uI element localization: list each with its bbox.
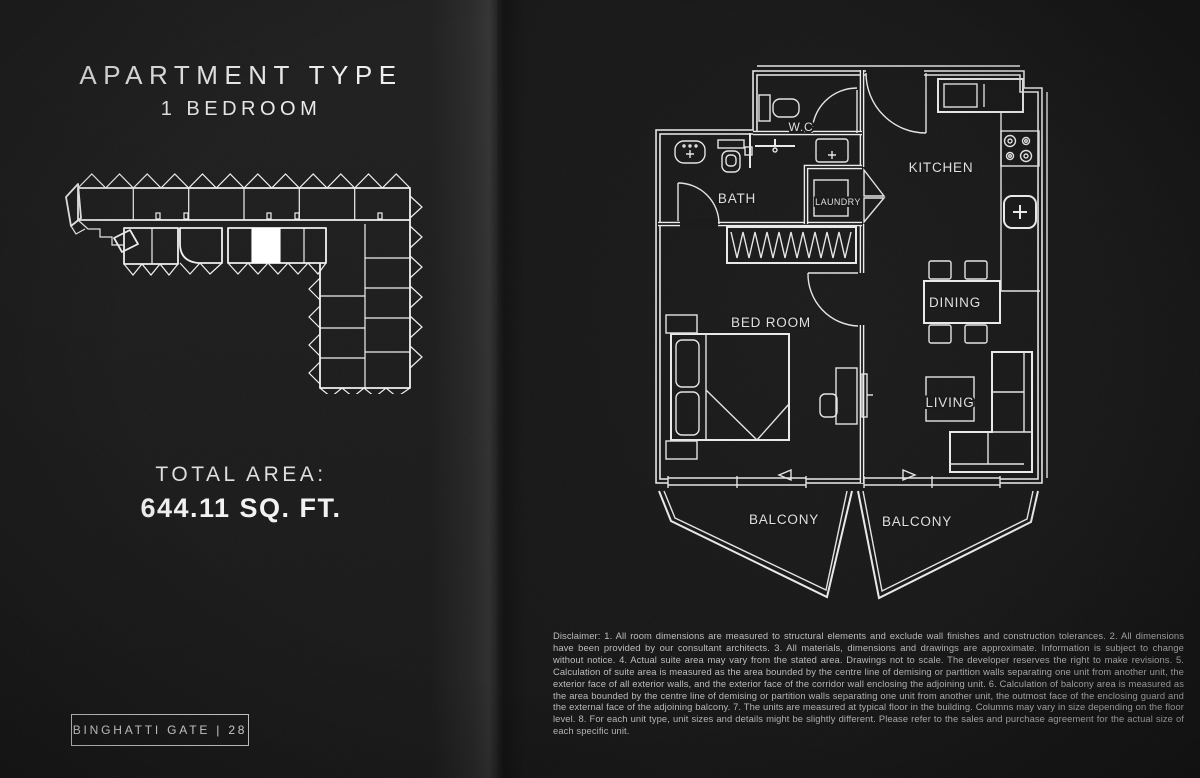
total-area-label: TOTAL AREA: (0, 463, 482, 487)
balcony-right-outline (858, 491, 1038, 598)
bath-door (678, 183, 719, 224)
entry-door (866, 73, 926, 133)
bed (671, 334, 789, 440)
room-label-balcony-right: BALCONY (882, 514, 952, 529)
kitchen-counter (1001, 112, 1040, 291)
wc-toilet (759, 95, 799, 121)
right-page: W.C BATH LAUNDRY KITCHEN BED ROOM DINING… (497, 0, 1200, 778)
sofa (950, 352, 1032, 472)
room-label-wc: W.C (788, 120, 813, 134)
brochure-spread: APARTMENT TYPE 1 BEDROOM (0, 0, 1200, 778)
building-key-plan (58, 166, 430, 394)
highlighted-unit (252, 228, 280, 263)
desk-and-chair (820, 368, 857, 424)
laundry-closet (814, 170, 884, 222)
project-badge: BINGHATTI GATE | 28 (71, 714, 249, 746)
entry-opening (866, 67, 924, 80)
bedroom-door (808, 273, 858, 326)
room-label-bedroom: BED ROOM (731, 315, 811, 330)
page-subtitle: 1 BEDROOM (0, 98, 482, 121)
project-badge-label: BINGHATTI GATE | 28 (73, 723, 248, 737)
wardrobe (727, 227, 856, 263)
bath-sink (675, 141, 705, 163)
fridge (938, 79, 1023, 112)
nightstand-bottom (666, 441, 697, 459)
room-label-laundry: LAUNDRY (815, 197, 861, 207)
disclaimer-text: Disclaimer: 1. All room dimensions are m… (553, 630, 1184, 737)
room-label-dining: DINING (929, 295, 981, 310)
kitchen-sink (1004, 196, 1036, 228)
room-label-living: LIVING (925, 395, 974, 410)
left-page: APARTMENT TYPE 1 BEDROOM (0, 0, 497, 778)
room-label-balcony-left: BALCONY (749, 512, 819, 527)
key-plan-outline (66, 174, 422, 394)
wc-door (812, 88, 857, 133)
total-area-value: 644.11 SQ. FT. (0, 493, 482, 524)
stove (1001, 131, 1039, 166)
room-label-kitchen: KITCHEN (909, 160, 974, 175)
floor-plan: W.C BATH LAUNDRY KITCHEN BED ROOM DINING… (640, 58, 1060, 638)
shower-tray (816, 139, 848, 162)
balcony-left-outline (659, 491, 852, 597)
bath-toilet (718, 140, 752, 172)
page-title: APARTMENT TYPE (0, 60, 482, 91)
room-label-bath: BATH (718, 191, 756, 206)
bath-door-opening (680, 218, 718, 230)
shower-rail (755, 139, 795, 152)
nightstand-top (666, 315, 697, 333)
